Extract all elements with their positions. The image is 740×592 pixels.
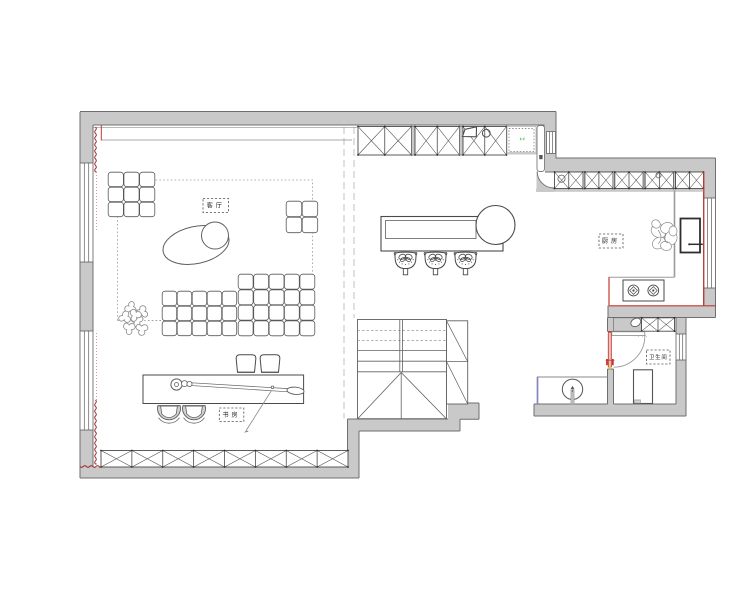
- svg-text:卫生间: 卫生间: [649, 353, 668, 361]
- svg-text:厨房: 厨房: [602, 237, 620, 245]
- svg-text:书房: 书房: [222, 411, 240, 419]
- svg-text:客厅: 客厅: [207, 202, 225, 210]
